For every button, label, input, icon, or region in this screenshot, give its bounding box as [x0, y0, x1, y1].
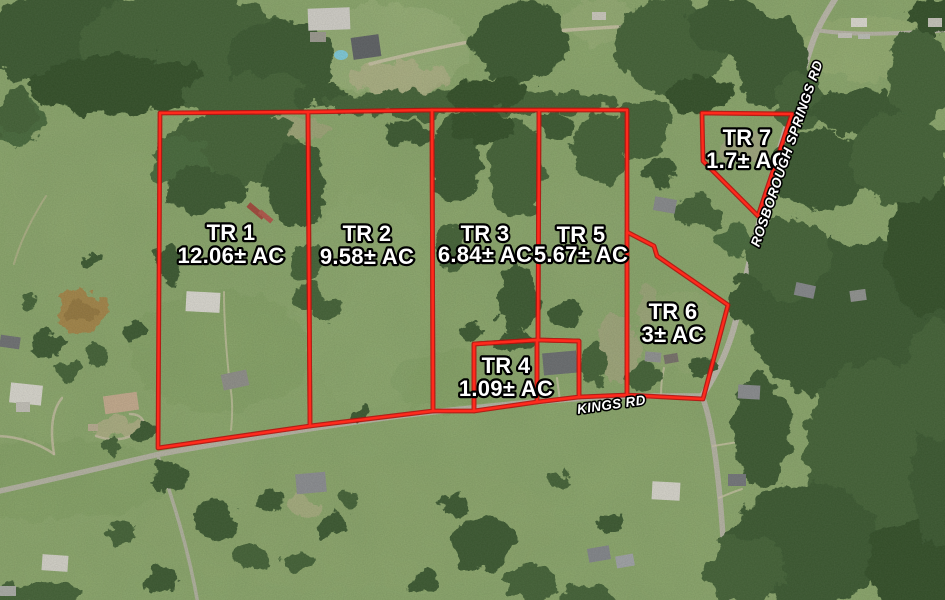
tract-2-acreage: 9.58± AC: [320, 244, 414, 269]
tract-1-name: TR 1: [207, 220, 256, 245]
tract-7-name: TR 7: [723, 125, 772, 150]
tract-6-name: TR 6: [649, 299, 698, 324]
parcel-map: TR 1 12.06± AC TR 2 9.58± AC TR 3 6.84± …: [0, 0, 945, 600]
tract-4-name: TR 4: [482, 353, 531, 378]
tract-2-name: TR 2: [343, 221, 392, 246]
tract-5-acreage: 5.67± AC: [534, 242, 628, 267]
tract-3-acreage: 6.84± AC: [438, 242, 532, 267]
tract-6-acreage: 3± AC: [642, 322, 705, 347]
tract-4-acreage: 1.09± AC: [459, 376, 553, 401]
tract-1-acreage: 12.06± AC: [178, 243, 285, 268]
